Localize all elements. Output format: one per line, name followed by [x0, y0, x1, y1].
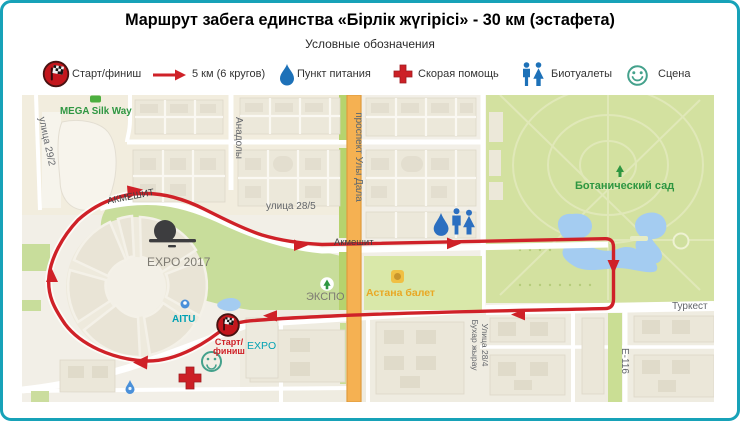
svg-text:Акмешит: Акмешит	[334, 237, 374, 248]
svg-text:Е-116: Е-116	[619, 348, 630, 374]
svg-text:Ботанический сад: Ботанический сад	[575, 180, 674, 192]
svg-text:Астана балет: Астана балет	[366, 287, 435, 299]
svg-text:Бухар жырау: Бухар жырау	[470, 319, 480, 371]
svg-text:EXPO 2017: EXPO 2017	[147, 255, 211, 269]
svg-text:улица 28/5: улица 28/5	[266, 201, 316, 212]
svg-text:Улица 28/4: Улица 28/4	[480, 323, 490, 366]
svg-text:финиш: финиш	[213, 346, 245, 356]
svg-text:EXPO: EXPO	[247, 340, 276, 352]
svg-text:ЭКСПО: ЭКСПО	[306, 291, 345, 303]
svg-text:MEGA Silk Way: MEGA Silk Way	[60, 106, 132, 117]
svg-text:проспект Улы Дала: проспект Улы Дала	[353, 112, 364, 202]
svg-text:Туркест: Туркест	[672, 301, 708, 312]
svg-text:AITU: AITU	[172, 314, 195, 325]
svg-text:Анадолы: Анадолы	[233, 117, 244, 159]
